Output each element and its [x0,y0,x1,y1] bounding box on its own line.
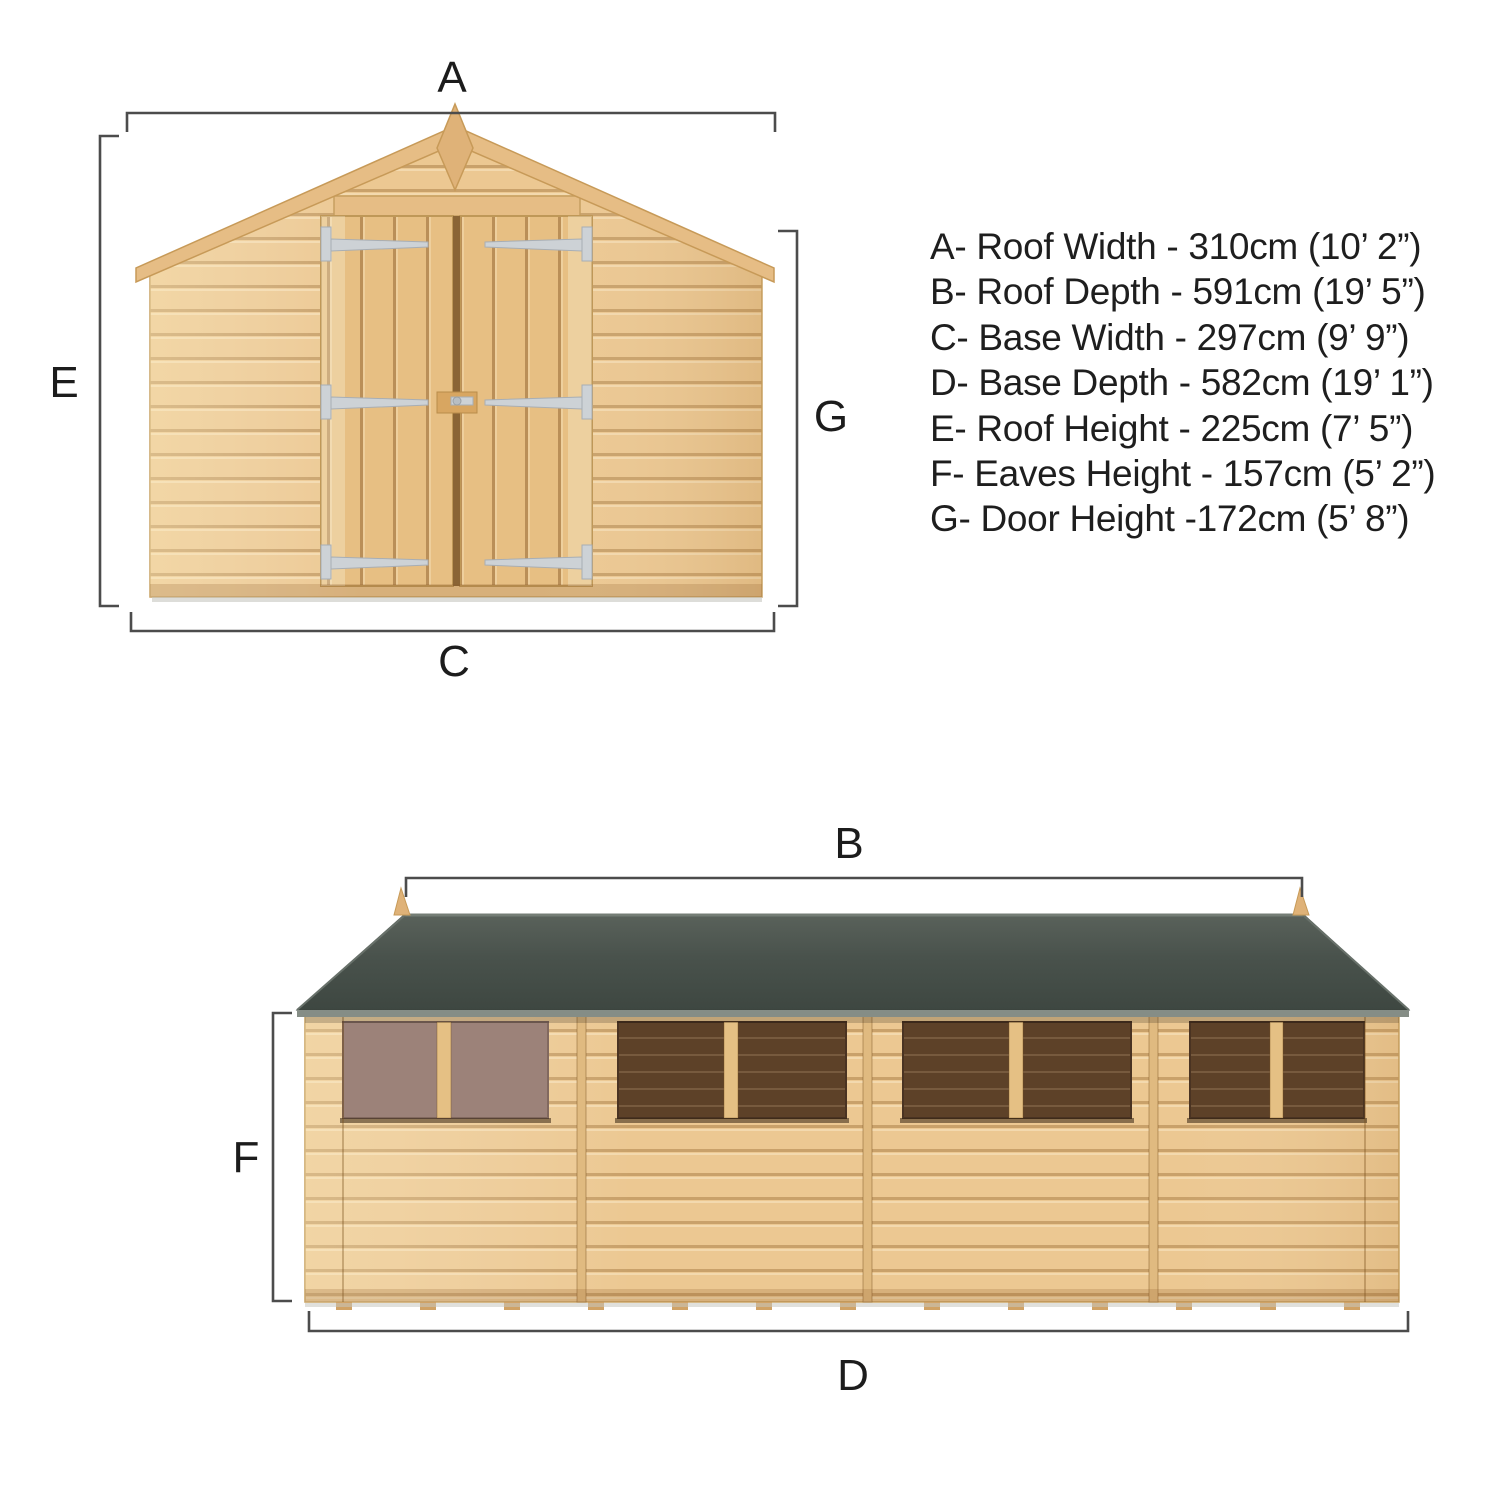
dim-label-a: A [437,53,467,102]
side-roof-finial [394,888,410,915]
dim-line-eaves-height-f [273,1013,292,1301]
roof-eave-edge [297,1010,1409,1017]
side-window-open [615,1022,849,1123]
wall-joint-batten [1149,1012,1158,1302]
wall-joint-batten [863,1012,872,1302]
wall-joint-batten [577,1012,586,1302]
dim-line-roof-height-e [100,136,119,606]
door-latch [437,392,477,413]
legend-line: E- Roof Height - 225cm (7’ 5”) [930,406,1435,451]
front-ground-shadow [152,597,762,602]
dim-line-base-width-c [131,612,774,631]
dim-label-g: G [814,392,848,441]
side-ground-shadow [305,1303,1399,1307]
front-base-rail [150,584,762,597]
dim-line-door-height-g [778,231,797,606]
side-base-rail [305,1289,1399,1302]
dim-label-f: F [233,1133,260,1182]
eave-shadow [305,1017,1399,1023]
dim-label-c: C [438,637,470,686]
side-roof-felt [297,914,1409,1010]
front-view: A E G C [49,53,848,686]
dim-label-b: B [834,819,863,868]
dim-line-base-depth-d [309,1311,1408,1331]
dim-label-d: D [837,1351,869,1400]
corner-trim-line [342,1012,344,1302]
legend-line: G- Door Height -172cm (5’ 8”) [930,496,1435,541]
door-header-beam [334,196,580,216]
legend-line: B- Roof Depth - 591cm (19’ 5”) [930,269,1435,314]
dim-line-roof-depth-b [406,878,1302,897]
side-window-glazed [340,1022,551,1123]
legend-line: A- Roof Width - 310cm (10’ 2”) [930,224,1435,269]
side-window-open [1187,1022,1367,1123]
legend-line: C- Base Width - 297cm (9’ 9”) [930,315,1435,360]
dimension-legend: A- Roof Width - 310cm (10’ 2”) B- Roof D… [930,224,1435,542]
corner-trim-line [1364,1012,1366,1302]
dim-label-e: E [49,358,78,407]
shed-dimension-diagram-page: A E G C [0,0,1500,1500]
side-view: B F D [233,819,1409,1400]
legend-line: F- Eaves Height - 157cm (5’ 2”) [930,451,1435,496]
legend-line: D- Base Depth - 582cm (19’ 1”) [930,360,1435,405]
side-window-open [900,1022,1134,1123]
